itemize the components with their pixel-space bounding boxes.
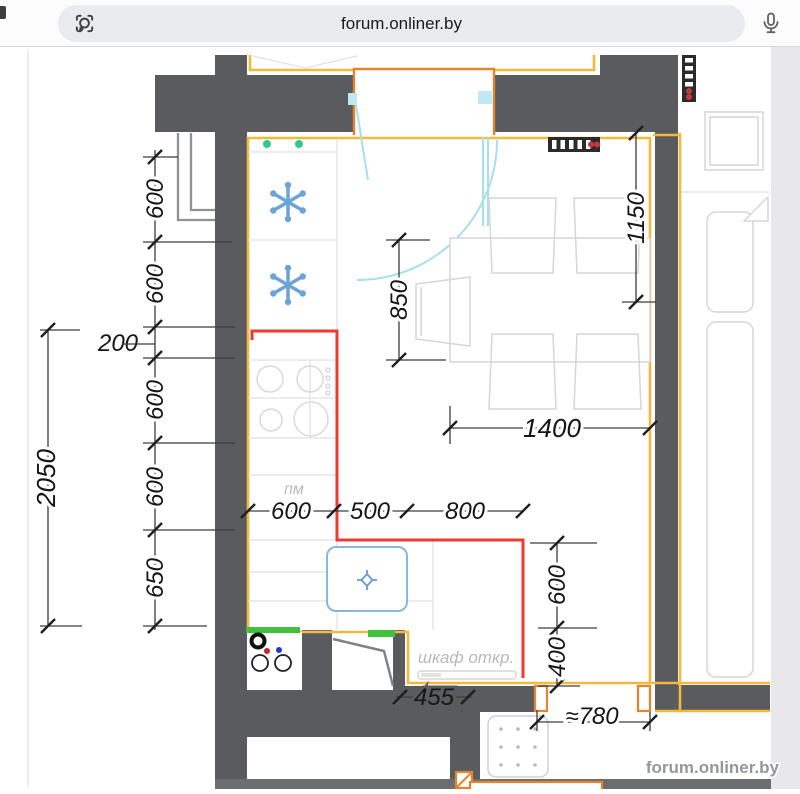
dim-label: 650 — [142, 557, 169, 598]
dim-label: 1400 — [523, 413, 581, 443]
hall-furniture — [470, 782, 602, 789]
radiator-horizontal — [548, 137, 600, 152]
page-right-band — [771, 47, 800, 789]
marker-dot — [263, 140, 271, 148]
watermark: forum.onliner.by — [646, 758, 780, 777]
cabinet-label: шкаф откр. — [418, 648, 514, 667]
browser-chrome: forum.onliner.by — [0, 0, 800, 47]
wall-segment — [155, 75, 353, 132]
wall-segment — [302, 630, 332, 690]
dim-label: 600 — [142, 379, 169, 420]
wall-segment — [600, 55, 678, 132]
floor-plan-image[interactable]: пм — [0, 47, 800, 789]
dim-label: ≈780 — [565, 703, 619, 730]
green-marker-bar — [246, 627, 300, 633]
door-jamb — [638, 686, 650, 711]
radiator-vertical — [682, 55, 696, 102]
address-bar[interactable]: forum.onliner.by — [58, 5, 745, 42]
dim-label: 455 — [414, 684, 455, 711]
dim-label: 1150 — [623, 192, 650, 244]
wall-segment — [450, 710, 480, 779]
green-marker-bar — [368, 630, 395, 637]
shelf-mark — [421, 673, 441, 677]
rug — [488, 716, 548, 777]
status-artifact — [0, 6, 6, 19]
marker-dot — [295, 140, 303, 148]
cold-water-dot — [276, 647, 282, 653]
dishwasher-label: пм — [284, 481, 304, 498]
dim-label: 600 — [544, 564, 571, 605]
wall-segment — [655, 132, 678, 710]
hot-water-dot — [264, 648, 270, 654]
dim-label: 2050 — [31, 449, 61, 508]
wall-segment — [215, 55, 247, 781]
dim-label: 600 — [142, 263, 169, 304]
dim-label: 600 — [271, 498, 312, 525]
wall-segment — [655, 685, 770, 710]
wall-segment — [495, 75, 600, 132]
dim-label: 500 — [350, 498, 391, 525]
door-hinge — [478, 91, 492, 104]
sink — [327, 547, 407, 611]
door-opening — [354, 69, 494, 135]
dim-label: 850 — [386, 279, 413, 320]
table — [450, 238, 650, 362]
door-jamb — [535, 686, 547, 711]
dim-label: 800 — [445, 498, 486, 525]
wall-segment — [393, 630, 405, 690]
dim-label: 600 — [142, 178, 169, 219]
microphone-icon[interactable] — [759, 11, 783, 35]
door-hinge — [348, 93, 357, 105]
dim-label: 400 — [544, 636, 571, 677]
dim-label: 600 — [142, 466, 169, 507]
address-url: forum.onliner.by — [58, 5, 745, 42]
